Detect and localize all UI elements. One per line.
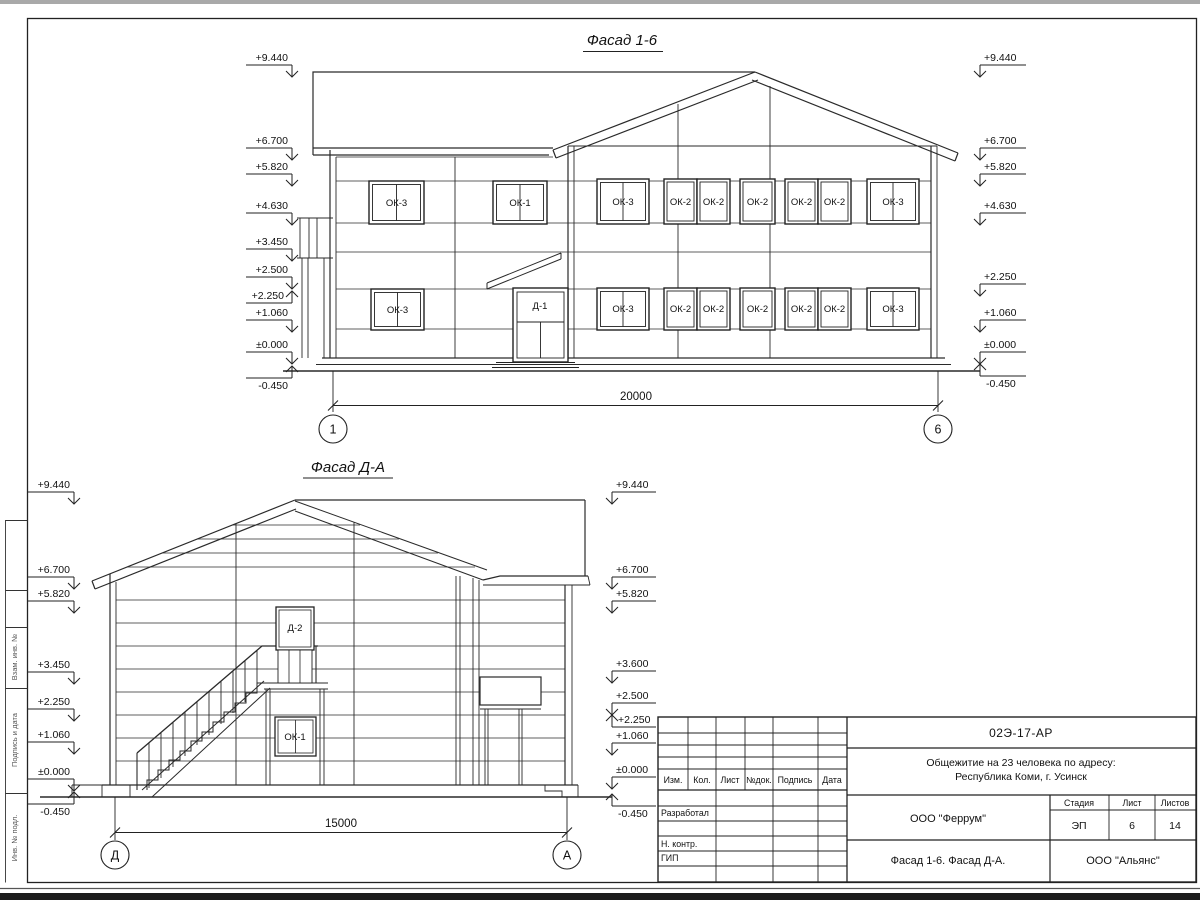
stair-landing [264, 683, 328, 689]
elevation-labels-left: +9.440 +6.700 +5.820 +4.630 +3.450 +2.50… [252, 52, 289, 392]
door-label: Д-1 [533, 301, 548, 312]
facade-1-6-title: Фасад 1-6 [587, 32, 658, 49]
drawing-sheet: Взам. инв. № Подпись и дата Инв. № подл.… [0, 0, 1200, 900]
window-label: ОК-3 [882, 197, 903, 208]
elevation-value: +5.820 [256, 161, 289, 173]
elevation-value: +9.440 [616, 479, 649, 491]
elevation-labels-left: +9.440 +6.700 +5.820 +3.450 +2.250 +1.06… [38, 479, 71, 818]
window-label: ОК-3 [386, 198, 407, 209]
elevation-value: +2.500 [616, 690, 649, 702]
annex [297, 218, 333, 358]
elevation-value: ±0.000 [984, 339, 1016, 351]
axis-label: 1 [330, 423, 337, 437]
sheet-number: 6 [1129, 820, 1135, 832]
window: ОК-2 [664, 288, 697, 330]
window: ОК-2 [740, 288, 775, 330]
side-canopy [480, 677, 541, 785]
elevation-value: +2.250 [252, 290, 285, 302]
window-label: ОК-2 [703, 304, 724, 315]
axis-markers-d-a: Д А [101, 841, 581, 869]
window: ОК-3 [369, 181, 424, 224]
window-label: ОК-2 [670, 304, 691, 315]
dimension-value: 15000 [325, 818, 357, 830]
axis-label: А [563, 849, 572, 863]
elevation-value: +6.700 [38, 564, 71, 576]
window: ОК-2 [740, 179, 775, 224]
window-label: ОК-2 [791, 197, 812, 208]
elevation-value: ±0.000 [256, 339, 288, 351]
elevation-value: +3.450 [38, 659, 71, 671]
elevation-value: +6.700 [984, 135, 1017, 147]
stage-header: Стадия [1064, 798, 1094, 808]
window-label: ОК-2 [670, 197, 691, 208]
windows-upper-row: ОК-3 ОК-1 ОК-3 ОК-2 ОК-2 ОК-2 ОК-2 ОК-2 … [369, 179, 919, 224]
facade-d-a-outline [40, 500, 612, 797]
window: ОК-3 [597, 288, 649, 330]
elevation-value: +3.450 [256, 236, 289, 248]
elevation-marks-right [974, 65, 1026, 376]
elevation-marks-left [246, 65, 298, 378]
elevation-labels-right: +9.440 +6.700 +5.820 +3.600 +2.500 +2.25… [616, 479, 651, 820]
sheet-header: Лист [1122, 798, 1141, 808]
window-label: ОК-1 [509, 198, 530, 209]
window: ОК-2 [818, 288, 851, 330]
elevation-value: +1.060 [256, 307, 289, 319]
dimension-value: 20000 [620, 391, 652, 403]
window-label: ОК-2 [747, 197, 768, 208]
window: ОК-3 [867, 288, 919, 330]
document-code: 02Э-17-АР [989, 726, 1053, 740]
entrance-canopy [487, 253, 561, 289]
sheets-total: 14 [1169, 820, 1181, 832]
scan-edge-top [0, 0, 1200, 4]
stamp-label: Подпись и дата [10, 712, 19, 767]
windows-lower-row: ОК-3 ОК-3 ОК-2 ОК-2 ОК-2 ОК-2 ОК-2 ОК-3 [371, 288, 919, 330]
elevation-value: +5.820 [984, 161, 1017, 173]
elevation-value: +1.060 [616, 730, 649, 742]
rev-col-header: Лист [720, 775, 739, 785]
elevation-value: +2.250 [984, 271, 1017, 283]
elevation-value: ±0.000 [38, 766, 70, 778]
elevation-marks-left [28, 492, 80, 804]
rev-col-header: Кол. [693, 775, 710, 785]
window: ОК-1 [275, 717, 316, 756]
elevation-value: +3.600 [616, 658, 649, 670]
stamp-label: Взам. инв. № [10, 634, 19, 680]
window-label: ОК-2 [747, 304, 768, 315]
sheet-title: Фасад 1-6. Фасад Д-А. [891, 855, 1006, 867]
window: ОК-3 [597, 179, 649, 224]
elevation-value: +9.440 [984, 52, 1017, 64]
window-label: ОК-2 [703, 197, 724, 208]
elevation-value: +5.820 [616, 588, 649, 600]
sig-row-label: Разработал [661, 808, 709, 818]
elevation-value: +4.630 [256, 200, 289, 212]
elevation-value: +9.440 [256, 52, 289, 64]
axis-label: 6 [935, 423, 942, 437]
axis-label: Д [111, 849, 120, 863]
window-label: ОК-2 [824, 304, 845, 315]
window: ОК-2 [818, 179, 851, 224]
elevation-value: +6.700 [616, 564, 649, 576]
project-name-line1: Общежитие на 23 человека по адресу: [926, 757, 1115, 769]
client-org: ООО "Альянс" [1086, 855, 1160, 867]
elevation-value: +5.820 [38, 588, 71, 600]
axis-markers-1-6: 1 6 [319, 415, 952, 443]
door-d1: Д-1 [492, 288, 579, 368]
elevation-marks-right [606, 492, 656, 806]
rev-col-header: Подпись [778, 775, 813, 785]
designer-org: ООО "Феррум" [910, 813, 986, 825]
elevation-value: +2.250 [618, 714, 651, 726]
window-label: ОК-3 [882, 304, 903, 315]
title-block: Изм. Кол. Лист №док. Подпись Дата Разраб… [658, 717, 1196, 882]
window: ОК-3 [867, 179, 919, 224]
elevation-value: -0.450 [618, 808, 648, 820]
elevation-value: -0.450 [986, 378, 1016, 390]
elevation-value: -0.450 [40, 806, 70, 818]
window: ОК-2 [785, 179, 818, 224]
elevation-labels-right: +9.440 +6.700 +5.820 +4.630 +2.250 +1.06… [984, 52, 1017, 390]
rev-col-header: Дата [822, 775, 842, 785]
elevation-value: +1.060 [38, 729, 71, 741]
window: ОК-2 [785, 288, 818, 330]
sheets-header: Листов [1161, 798, 1190, 808]
door-d2: Д-2 [276, 607, 314, 683]
rev-col-header: №док. [746, 775, 772, 785]
scan-edge-bottom [0, 893, 1200, 900]
window-label: ОК-2 [791, 304, 812, 315]
project-name-line2: Республика Коми, г. Усинск [955, 771, 1087, 783]
elevation-value: +2.250 [38, 696, 71, 708]
window: ОК-2 [697, 288, 730, 330]
window-label: ОК-1 [284, 732, 305, 743]
window-label: ОК-3 [612, 197, 633, 208]
elevation-value: -0.450 [258, 380, 288, 392]
stage-value: ЭП [1071, 820, 1086, 832]
sig-row-label: Н. контр. [661, 839, 697, 849]
elevation-value: +4.630 [984, 200, 1017, 212]
drawing-canvas: Взам. инв. № Подпись и дата Инв. № подл.… [0, 0, 1200, 900]
elevation-value: +2.500 [256, 264, 289, 276]
window-label: ОК-3 [612, 304, 633, 315]
door-label: Д-2 [288, 623, 303, 634]
facade-d-a: Фасад Д-А [28, 459, 656, 869]
window-label: ОК-3 [387, 305, 408, 316]
elevation-value: +1.060 [984, 307, 1017, 319]
entrance-steps [492, 363, 579, 368]
elevation-value: ±0.000 [616, 764, 648, 776]
rev-col-header: Изм. [664, 775, 683, 785]
facade-1-6: Фасад 1-6 [246, 32, 1026, 443]
sig-row-label: ГИП [661, 853, 678, 863]
stamp-label: Инв. № подл. [10, 815, 19, 862]
window: ОК-3 [371, 289, 424, 330]
stair-balusters [149, 650, 257, 788]
window: ОК-2 [697, 179, 730, 224]
window: ОК-2 [664, 179, 697, 224]
elevation-value: +6.700 [256, 135, 289, 147]
window: ОК-1 [493, 181, 547, 224]
window-label: ОК-2 [824, 197, 845, 208]
elevation-value: +9.440 [38, 479, 71, 491]
facade-d-a-title: Фасад Д-А [311, 459, 385, 476]
